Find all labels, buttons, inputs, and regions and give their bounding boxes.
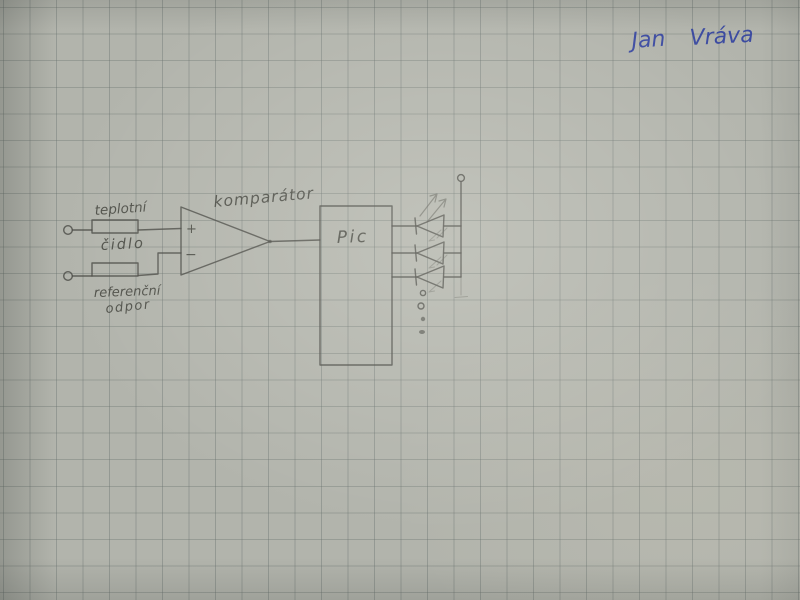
led-symbol-3: [392, 266, 461, 292]
circuit-sketch: teplotní čidlo referenční odpor + − komp…: [0, 0, 800, 600]
dot: [418, 303, 424, 309]
resistor-body: [92, 220, 138, 233]
wire-step: [138, 253, 181, 276]
mcu-pic: Pic: [320, 206, 392, 365]
resistor-reference: referenční odpor: [92, 253, 181, 317]
terminal-circle-icon: [64, 226, 73, 235]
signature-first-name: Jan: [627, 27, 667, 55]
opamp-triangle: [181, 207, 270, 275]
wire: [138, 229, 181, 231]
led-symbol-2: [392, 242, 461, 268]
diode-bar: [415, 269, 417, 285]
output-wire: [270, 240, 320, 242]
input-terminal-top: [64, 226, 92, 235]
signature: Jan Vráva: [627, 23, 755, 55]
diode-bar: [415, 218, 417, 234]
diode-triangle: [417, 242, 444, 264]
label-pic: Pic: [336, 227, 369, 248]
led-symbol-1: [392, 194, 461, 241]
comparator: + − komparátor: [181, 184, 320, 275]
minus-input-label: −: [185, 247, 197, 263]
input-terminal-bottom: [64, 272, 92, 281]
photo-of-sketch: teplotní čidlo referenční odpor + − komp…: [0, 0, 800, 600]
supply-rail: [455, 175, 468, 298]
diode-bar: [415, 245, 417, 261]
plus-input-label: +: [186, 222, 197, 237]
terminal-circle-icon: [64, 272, 73, 281]
bus-wire-faint-end: [455, 277, 468, 298]
label-komparator: komparátor: [213, 184, 316, 211]
label-referencni: referenční: [94, 284, 163, 301]
dot: [420, 290, 425, 295]
resistor-temperature-sensor: teplotní čidlo: [92, 199, 181, 254]
dot: [419, 330, 425, 334]
terminal-circle-icon: [458, 175, 465, 182]
continuation-dots: [418, 290, 426, 334]
diode-triangle: [417, 266, 444, 288]
label-teplotni: teplotní: [94, 199, 149, 219]
signature-last-name: Vráva: [689, 23, 754, 51]
dot: [421, 317, 425, 321]
resistor-body: [92, 263, 138, 276]
label-cidlo: čidlo: [100, 236, 145, 254]
